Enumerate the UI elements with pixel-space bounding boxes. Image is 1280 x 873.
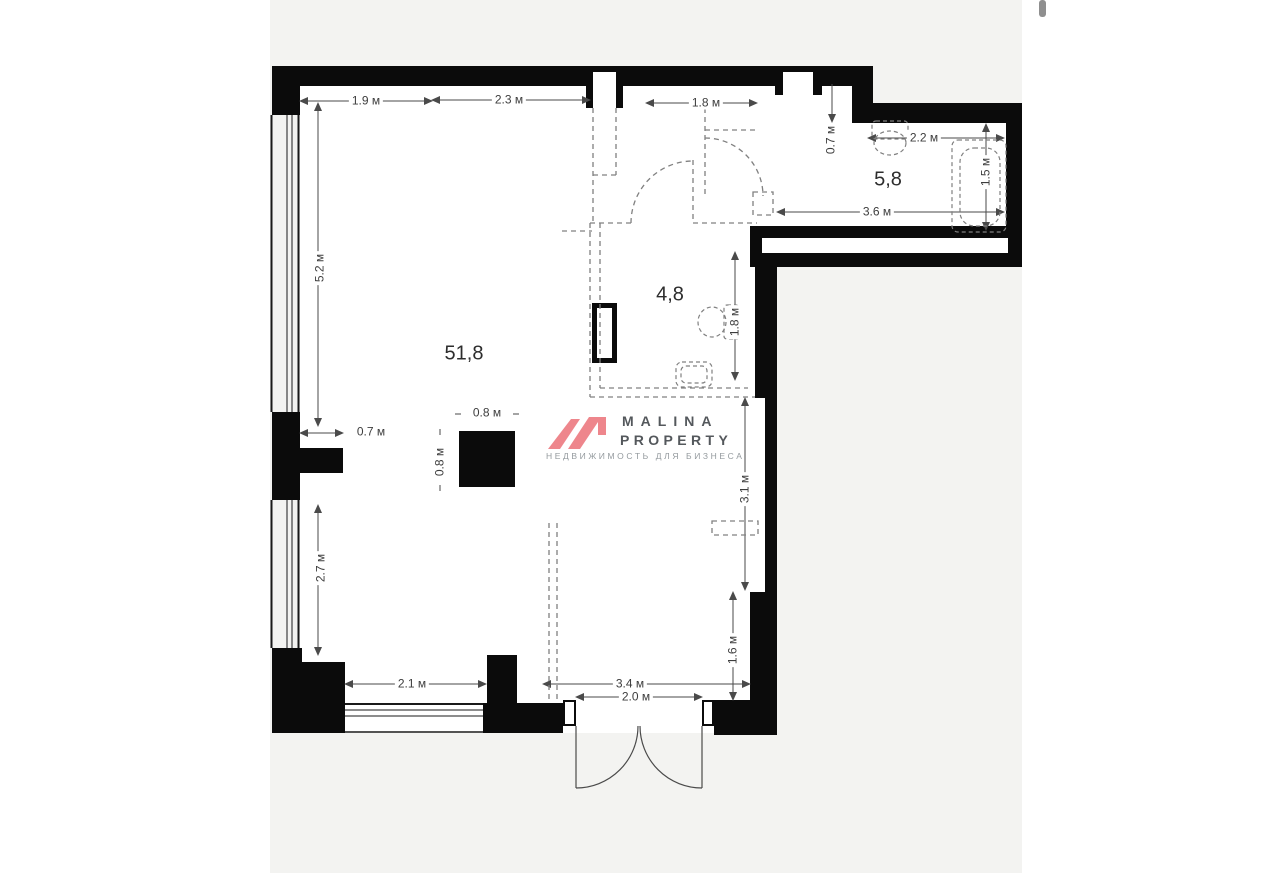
wall-bath-top bbox=[873, 103, 1022, 123]
wall-entrance-stub bbox=[487, 655, 517, 703]
room-label-hall: 4,8 bbox=[656, 284, 684, 307]
dim-left-5-2: 5.2 м bbox=[314, 251, 327, 285]
wall-right-lower bbox=[750, 592, 777, 702]
scrollbar-thumb[interactable] bbox=[1039, 0, 1046, 17]
wall-corner-bottom-right bbox=[714, 700, 777, 735]
wall-left-pier-stub bbox=[300, 448, 343, 473]
niche-b-slot bbox=[783, 72, 813, 95]
wall-bath-bottom-slot bbox=[762, 238, 1008, 253]
door-jamb-right bbox=[702, 700, 714, 726]
dim-top-1-8: 1.8 м bbox=[689, 97, 723, 110]
wall-right-middle bbox=[765, 398, 777, 592]
floorplan-page: 51,8 4,8 5,8 1.9 м 2.3 м 1.8 м 0.7 м 2.2… bbox=[0, 0, 1280, 873]
wall-corner-bath bbox=[852, 66, 873, 123]
dim-column-height: 0.8 м bbox=[434, 445, 447, 479]
dim-bath-3-6: 3.6 м bbox=[860, 206, 894, 219]
watermark-brand-line1: MALINA bbox=[622, 413, 718, 429]
room-label-bath: 5,8 bbox=[874, 169, 902, 192]
dim-top-2-3: 2.3 м bbox=[492, 94, 526, 107]
wall-corner-top-left bbox=[272, 66, 300, 115]
dim-bath-2-2: 2.2 м bbox=[907, 132, 941, 145]
malina-logo-icon bbox=[546, 413, 614, 453]
wall-corner-bottom-left bbox=[272, 648, 302, 733]
room-label-main: 51,8 bbox=[445, 343, 484, 366]
dim-bottom-2-1: 2.1 м bbox=[395, 678, 429, 691]
dim-bath-0-7: 0.7 м bbox=[825, 123, 838, 157]
dim-bath-1-5: 1.5 м bbox=[980, 155, 993, 189]
dim-left-2-7: 2.7 м bbox=[315, 551, 328, 585]
structural-column bbox=[459, 431, 515, 487]
watermark-brand-line2: PROPERTY bbox=[620, 432, 732, 448]
dim-right-1-6: 1.6 м bbox=[727, 633, 740, 667]
dim-top-1-9: 1.9 м bbox=[349, 95, 383, 108]
dim-bottom-2-0: 2.0 м bbox=[619, 691, 653, 704]
vent-shaft bbox=[592, 303, 617, 363]
niche-a-slot bbox=[593, 72, 616, 108]
door-jamb-left bbox=[563, 700, 576, 726]
dim-left-0-7: 0.7 м bbox=[354, 426, 388, 439]
dim-hall-1-8: 1.8 м bbox=[729, 305, 742, 339]
wall-bottom-mid bbox=[483, 703, 563, 733]
watermark: MALINA PROPERTY НЕДВИЖИМОСТЬ ДЛЯ БИЗНЕСА bbox=[546, 405, 746, 465]
wall-corner-bottom-left-step bbox=[302, 662, 345, 733]
wall-left-pier bbox=[272, 412, 300, 500]
watermark-tagline: НЕДВИЖИМОСТЬ ДЛЯ БИЗНЕСА bbox=[546, 451, 744, 461]
dim-right-3-1: 3.1 м bbox=[739, 472, 752, 506]
wall-right-upper bbox=[755, 267, 777, 398]
dim-column-width: 0.8 м bbox=[470, 407, 504, 420]
